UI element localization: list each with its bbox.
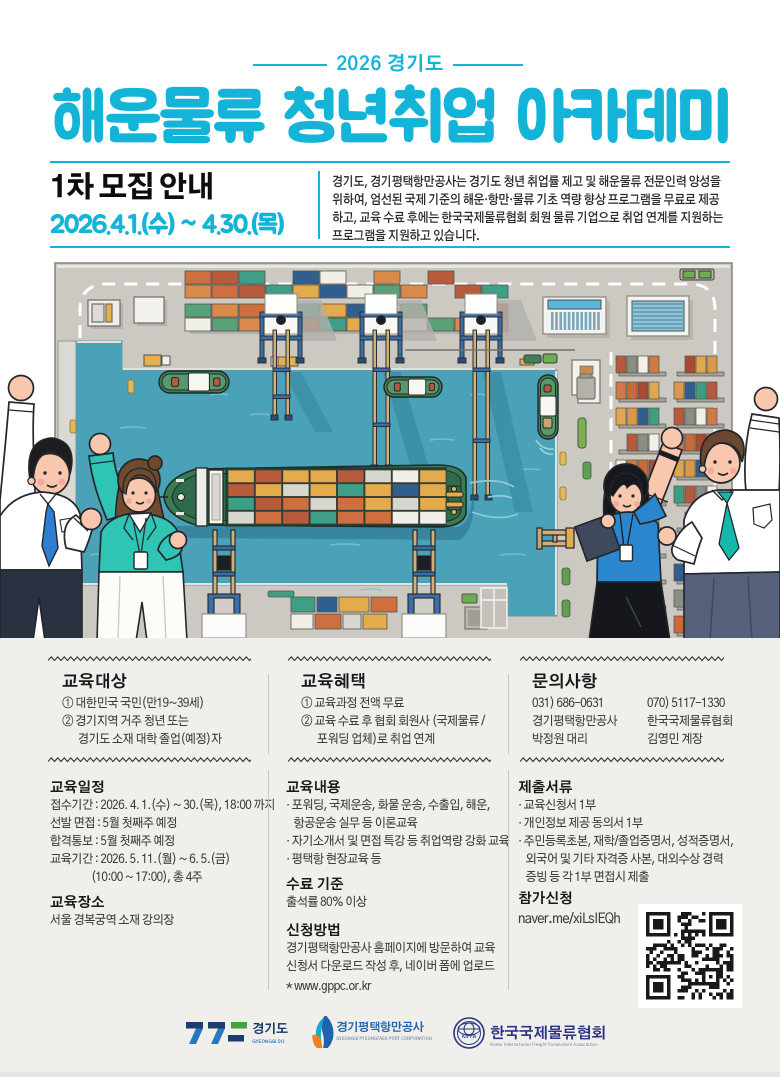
svg-text:Korea International Freight Fo: Korea International Freight Forwarders A…	[490, 1042, 598, 1047]
svg-text:GYEONGGI PYEONGTAEK PORT CORPO: GYEONGGI PYEONGTAEK PORT CORPORATION	[336, 1036, 432, 1041]
svg-text:GYEONGGI DO: GYEONGGI DO	[252, 1039, 284, 1044]
svg-text:KIFFA: KIFFA	[462, 1034, 477, 1040]
svg-text:한국국제물류협회: 한국국제물류협회	[490, 1025, 606, 1042]
svg-text:경기평택항만공사: 경기평택항만공사	[336, 1021, 424, 1034]
svg-text:경기도: 경기도	[252, 1022, 288, 1036]
